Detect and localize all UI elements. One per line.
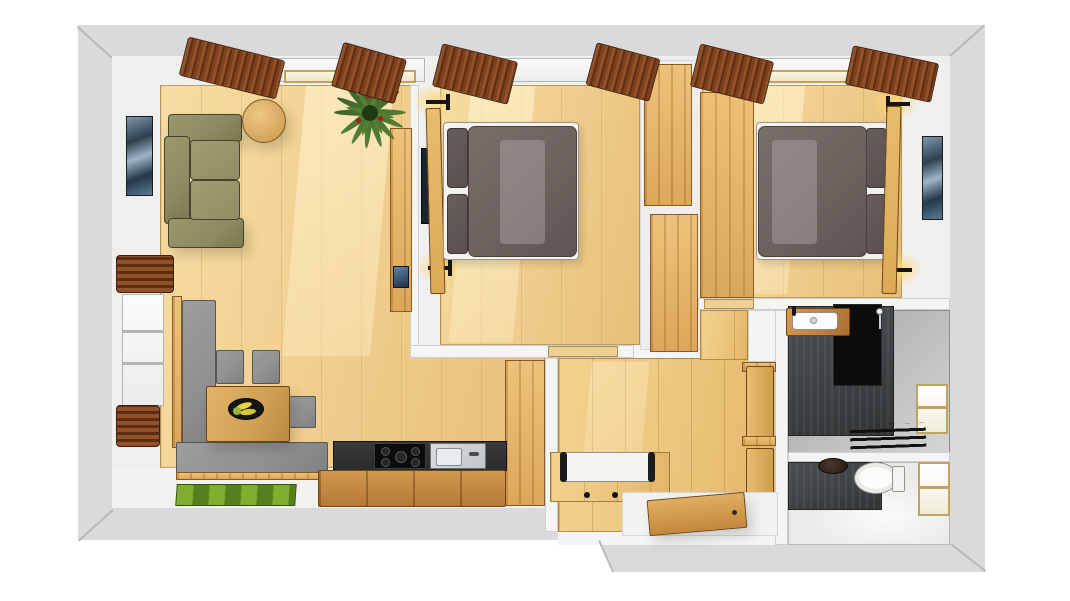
door-threshold-bedroom-2	[704, 299, 754, 309]
sink-drain	[810, 317, 817, 324]
tv	[393, 266, 409, 288]
plant-pot	[362, 105, 378, 121]
burner	[411, 458, 420, 467]
cooktop	[374, 443, 426, 469]
bench-frame	[176, 472, 328, 480]
curtain-roll	[116, 405, 160, 447]
wall-lamp	[448, 260, 452, 276]
window-mullion	[122, 362, 164, 365]
hallway-corridor-floor	[700, 310, 748, 360]
bench-armrest	[648, 452, 655, 482]
wall-art-bedroom-2	[922, 136, 943, 220]
wardrobe-cabinet	[650, 214, 698, 352]
door-handle	[732, 510, 737, 515]
burner	[381, 458, 390, 467]
coffee-table	[242, 99, 286, 143]
shower-grate	[850, 423, 927, 450]
curtain-roll	[116, 255, 174, 293]
partition-wall	[545, 358, 558, 532]
burner	[395, 451, 407, 463]
sofa-cushion	[190, 140, 240, 180]
kitchen-sink	[430, 443, 486, 469]
dining-chair	[252, 350, 280, 384]
pillow	[447, 128, 468, 188]
duvet-fold	[772, 140, 817, 244]
faucet	[469, 452, 479, 456]
floorplan-render	[0, 0, 1070, 601]
coat-hook	[612, 492, 618, 498]
wc-window	[918, 462, 950, 516]
sofa-arm	[168, 218, 244, 248]
kitchen-tall-cabinet	[505, 360, 545, 506]
dining-chair	[216, 350, 244, 384]
door-frame	[742, 436, 776, 446]
sofa-cushion	[190, 180, 240, 220]
window-mullion	[918, 406, 946, 409]
burner	[381, 447, 390, 456]
coat-hook	[584, 492, 590, 498]
burner	[411, 447, 420, 456]
wc-basin	[818, 458, 848, 474]
bench-frame	[172, 296, 182, 448]
dining-chair	[288, 396, 316, 428]
window-left	[122, 294, 164, 406]
wardrobe	[700, 92, 754, 298]
shower-head	[876, 308, 883, 315]
toilet-tank	[892, 466, 905, 492]
window-mullion	[122, 330, 164, 333]
bathroom-door	[746, 366, 774, 438]
sofa-back	[164, 136, 190, 224]
pillow	[447, 194, 468, 254]
faucet	[792, 306, 796, 316]
duvet-fold	[500, 140, 545, 244]
hall-bench-cushion	[562, 452, 652, 482]
window-mullion	[920, 486, 948, 489]
wall-art-living	[126, 116, 153, 196]
shower-hose	[879, 315, 881, 329]
partition-wall	[788, 452, 950, 462]
door-mat	[175, 484, 297, 506]
door-threshold-bedroom-1	[548, 346, 618, 357]
kitchen-cabinets	[318, 470, 506, 507]
sink-basin	[436, 448, 462, 466]
berry	[378, 116, 383, 121]
wall-lamp	[446, 94, 450, 110]
berry	[356, 118, 361, 123]
fruit	[233, 407, 241, 415]
bench-armrest	[560, 452, 567, 482]
dining-corner-bench	[176, 442, 328, 474]
